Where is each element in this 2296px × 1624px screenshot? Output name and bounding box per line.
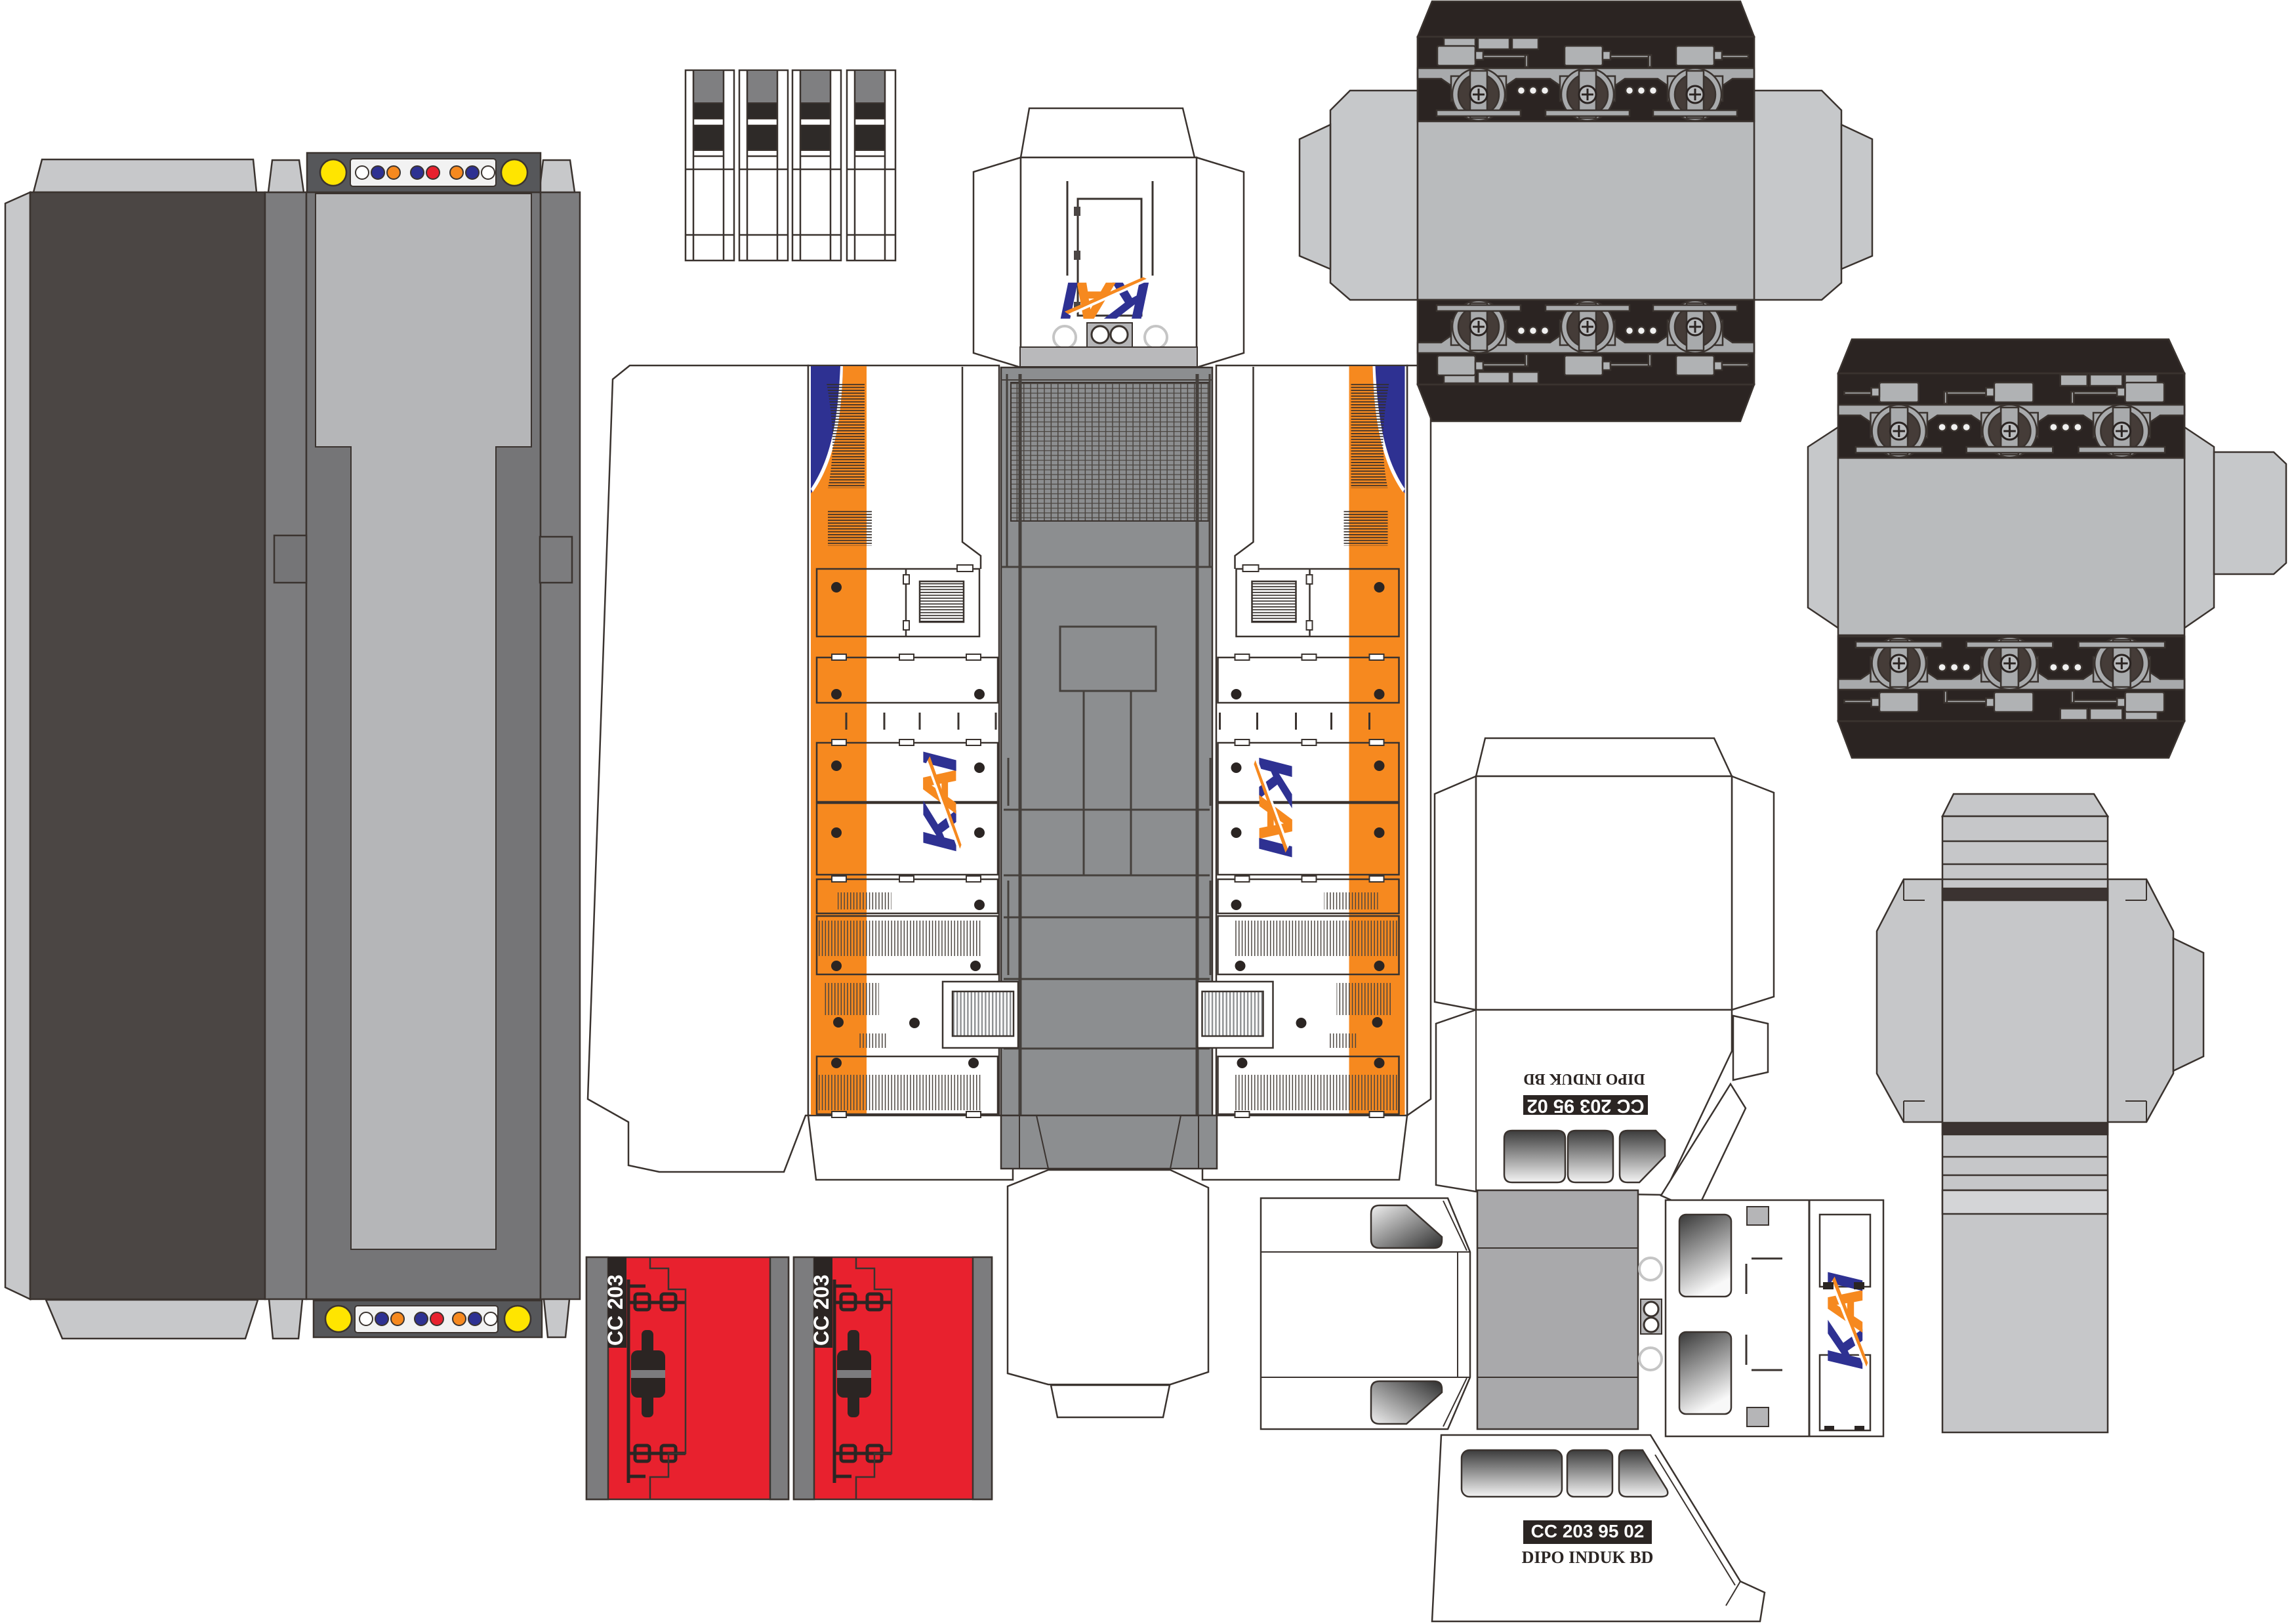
svg-text:DIPO INDUK BD: DIPO INDUK BD	[1523, 1070, 1645, 1087]
svg-text:CC 203: CC 203	[604, 1275, 627, 1346]
svg-text:CC 203 95 02: CC 203 95 02	[1527, 1095, 1645, 1116]
svg-text:CC 203 95 02: CC 203 95 02	[1531, 1521, 1645, 1541]
svg-text:DIPO INDUK BD: DIPO INDUK BD	[1522, 1548, 1654, 1567]
svg-text:CC 203: CC 203	[810, 1275, 833, 1346]
